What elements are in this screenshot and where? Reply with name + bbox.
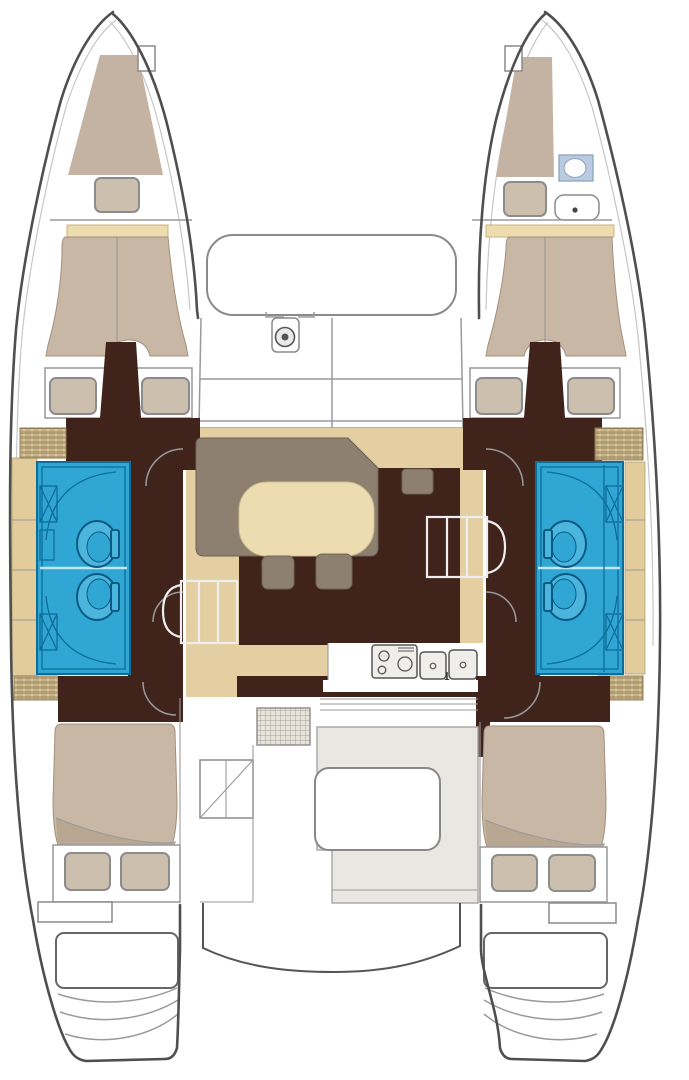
port-fwd-pillow-2 — [142, 378, 189, 414]
stbd-fwd-berth — [486, 237, 626, 356]
stbd-fwd-pillow-2 — [568, 378, 614, 414]
port-aft-pillow-1 — [65, 853, 110, 890]
stbd-fwd-pillow-1 — [476, 378, 522, 414]
stbd-swim-platform — [484, 933, 607, 988]
cockpit-table — [315, 768, 440, 850]
port-transom-step — [38, 902, 112, 922]
foredeck — [199, 235, 463, 428]
port-forepeak-berth — [68, 55, 163, 175]
helm-seat — [200, 760, 253, 818]
stbd-aft-corridor — [480, 676, 610, 722]
port-cabinet-aft — [14, 676, 58, 700]
stbd-aft-pillow-1 — [492, 855, 537, 891]
starboard-forward-cabin — [470, 225, 626, 418]
anchor-windlass — [266, 312, 314, 352]
saloon-table — [239, 482, 374, 556]
floor-plan-svg — [0, 0, 689, 1080]
stbd-fwd-entry-wedge — [524, 342, 565, 418]
port-swim-steps — [58, 988, 178, 1040]
trampoline — [207, 235, 456, 315]
port-heads — [37, 462, 130, 674]
port-side-shelf — [12, 458, 37, 676]
stbd-aft-pillow-2 — [549, 855, 595, 891]
starboard-aft-cabin — [476, 676, 610, 902]
stbd-swim-steps — [484, 988, 604, 1040]
port-forward-cabin — [45, 225, 192, 418]
forepeak-sink — [555, 195, 599, 220]
port-fwd-headboard — [67, 225, 168, 237]
port-forepeak-pillow — [95, 178, 139, 212]
port-cabinet-fwd — [20, 428, 66, 458]
port-swim-platform — [56, 933, 178, 988]
port-fwd-entry-wedge — [100, 342, 141, 418]
saloon-side-table — [402, 469, 433, 494]
stbd-side-shelf — [625, 462, 645, 674]
stbd-transom-step — [549, 903, 616, 923]
sliding-door — [323, 680, 478, 692]
deck-grate — [257, 708, 310, 745]
port-aft-corridor — [58, 676, 183, 722]
port-aft-cabin — [53, 676, 183, 902]
stbd-cabinet-fwd — [595, 428, 643, 460]
port-aft-pillow-2 — [121, 853, 169, 890]
stove — [372, 645, 417, 678]
saloon-stool-1 — [262, 556, 294, 589]
sliding-door-tracks — [320, 699, 478, 710]
starboard-heads — [536, 462, 623, 674]
cockpit — [180, 680, 480, 903]
forepeak-toilet — [559, 155, 593, 181]
starboard-forepeak-pillow — [504, 182, 546, 216]
stbd-fwd-headboard — [486, 225, 614, 237]
foredeck-locker-lines — [199, 318, 463, 428]
saloon-stool-2 — [316, 554, 352, 589]
starboard-forepeak-berth — [496, 57, 554, 177]
aft-deck-edge — [203, 903, 460, 972]
transoms — [38, 902, 616, 1040]
port-fwd-pillow-1 — [50, 378, 96, 414]
